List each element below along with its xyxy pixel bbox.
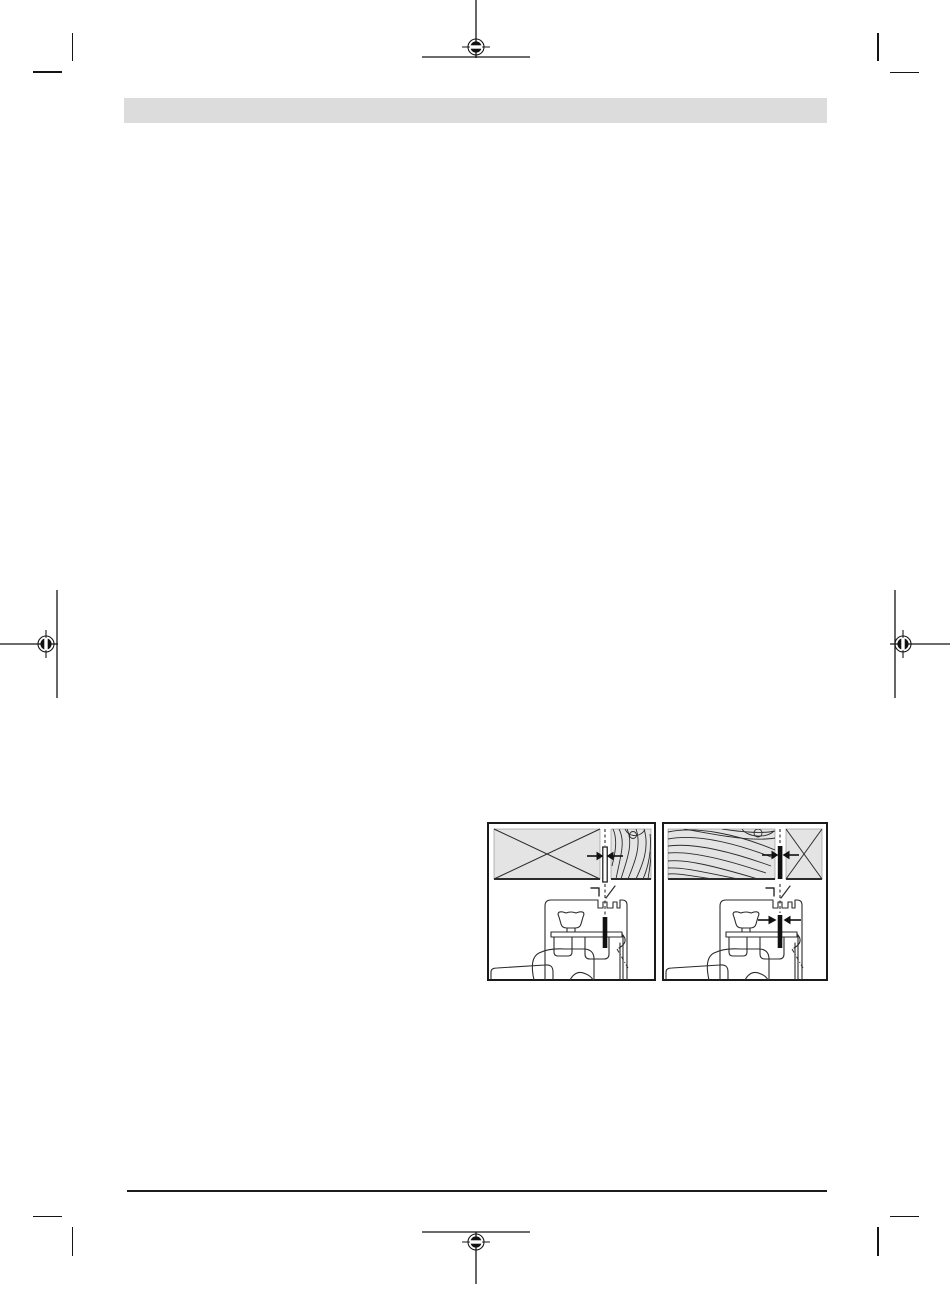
blade-alignment-diagram-left	[487, 822, 656, 981]
header-bar-fill	[124, 98, 827, 123]
footer-rule-fill	[127, 1190, 827, 1192]
registration-mark-bottom-center-icon	[416, 1224, 536, 1288]
saw-blade-outline	[603, 847, 607, 882]
saw-blade-filled	[603, 917, 608, 948]
trim-mark-top-right-horizontal	[890, 72, 919, 74]
trim-mark-bottom-left-horizontal	[33, 1216, 62, 1218]
cross-panel	[494, 829, 600, 879]
trim-mark-bottom-left-vertical	[72, 1227, 74, 1256]
wood-grain-panel	[668, 829, 775, 879]
saw-blade-filled-top	[778, 846, 783, 879]
header-bar	[124, 98, 827, 123]
cross-panel	[786, 829, 822, 879]
wood-grain-panel	[611, 829, 651, 879]
trim-mark-top-right-vertical	[877, 33, 879, 61]
trim-mark-bottom-right-vertical	[877, 1227, 879, 1256]
registration-mark-left-middle-icon	[0, 584, 120, 704]
blade-alignment-diagram-right	[662, 822, 828, 981]
saw-blade-filled	[778, 915, 783, 948]
document-page	[0, 0, 950, 1289]
trim-mark-top-left-horizontal	[33, 71, 62, 73]
registration-mark-right-middle-icon	[830, 584, 950, 704]
trim-mark-top-left-vertical	[72, 33, 74, 61]
trim-mark-bottom-right-horizontal	[890, 1216, 919, 1218]
footer-rule	[127, 1190, 827, 1192]
registration-mark-top-center-icon	[416, 0, 536, 60]
